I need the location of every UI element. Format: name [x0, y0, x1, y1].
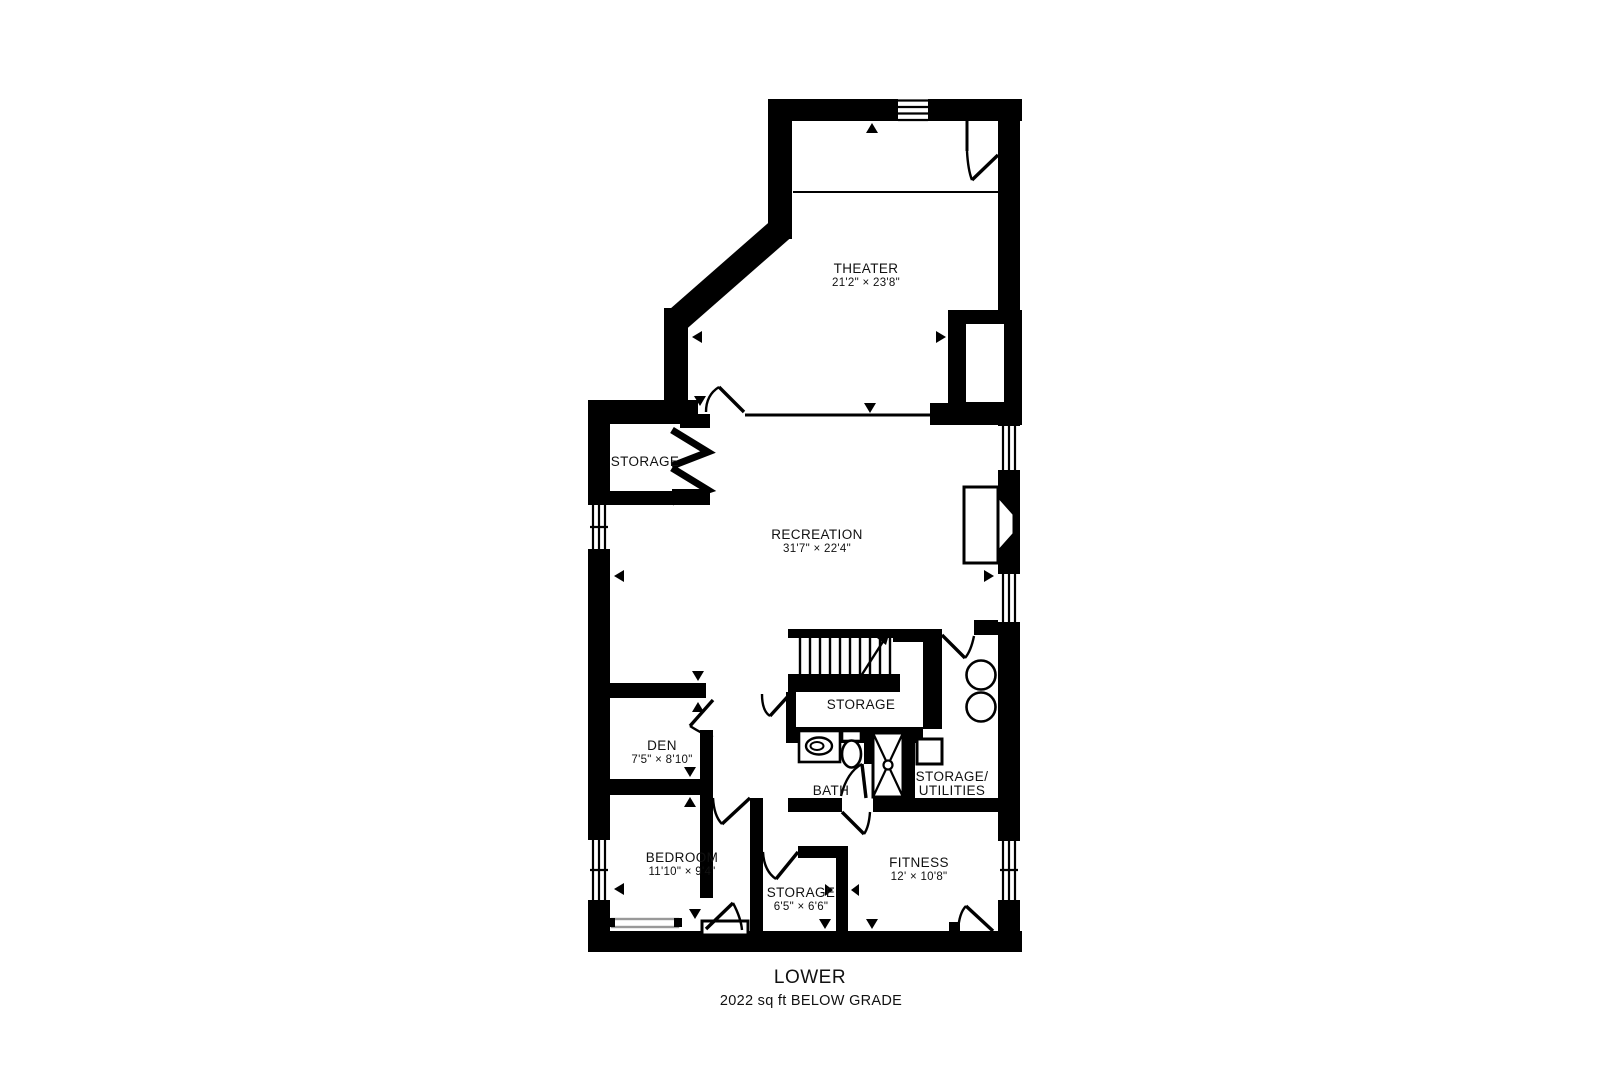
window-right-middle — [998, 574, 1020, 622]
window-left-upper — [588, 505, 610, 549]
sink-icon — [799, 731, 840, 762]
bedroom-shelf — [608, 918, 682, 927]
window-well — [966, 324, 1004, 402]
floorplan-drawing — [0, 0, 1620, 1080]
toilet-icon — [842, 731, 861, 768]
utility-box — [917, 739, 942, 764]
plan-title-text: LOWER — [774, 967, 846, 988]
window-left-bedroom — [588, 840, 610, 900]
door-storage-stairs — [762, 694, 790, 716]
walls — [588, 99, 1022, 952]
fixtures — [608, 487, 1014, 927]
door-fitness-bottom — [958, 906, 993, 931]
shower-stall — [873, 733, 903, 797]
window-right-fitness — [998, 841, 1020, 900]
plan-title: LOWER — [774, 968, 846, 988]
door-fitness-entry — [842, 812, 870, 834]
door-theater — [967, 121, 998, 180]
plan-subtitle-text: 2022 sq ft BELOW GRADE — [720, 993, 902, 1009]
door-storage-lower — [763, 852, 798, 879]
window-right-upper — [998, 426, 1020, 470]
door-bath — [841, 764, 866, 798]
door-corridor-top — [713, 798, 750, 824]
door-recreation-top — [706, 387, 744, 412]
floorplan-page: THEATER21'2" × 23'8"STORAGERECREATION31'… — [0, 0, 1620, 1080]
stair-treads — [800, 638, 890, 674]
door-utilities — [942, 635, 974, 658]
water-tanks — [967, 661, 996, 722]
window-theater-top — [898, 99, 928, 121]
plan-subtitle: 2022 sq ft BELOW GRADE — [720, 992, 902, 1010]
